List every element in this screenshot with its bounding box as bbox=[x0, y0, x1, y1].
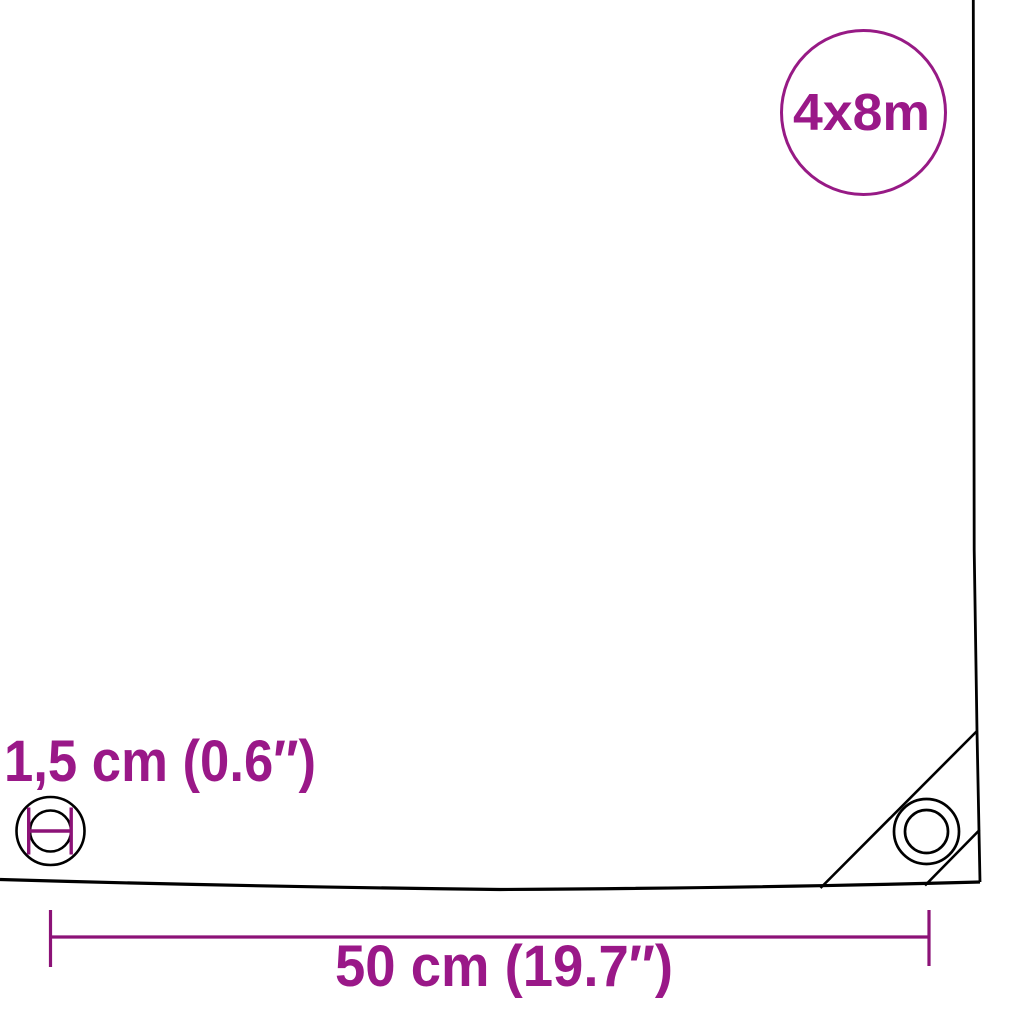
svg-text:4x8m: 4x8m bbox=[793, 84, 930, 142]
svg-text:50 cm (19.7″): 50 cm (19.7″) bbox=[335, 934, 673, 999]
svg-text:1,5 cm (0.6″): 1,5 cm (0.6″) bbox=[4, 729, 316, 794]
